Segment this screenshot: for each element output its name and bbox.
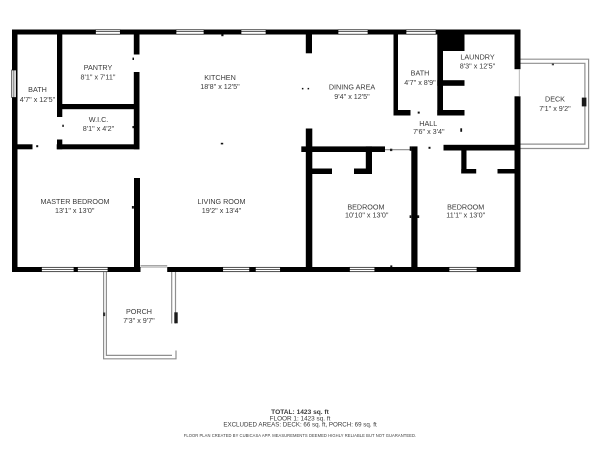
svg-text:FLOOR PLAN CREATED BY CUBICASA: FLOOR PLAN CREATED BY CUBICASA APP. MEAS… [184, 433, 416, 438]
svg-text:10'10" x 13'0": 10'10" x 13'0" [345, 210, 389, 219]
svg-text:BATH: BATH [411, 69, 430, 78]
svg-text:DECK: DECK [545, 95, 565, 104]
svg-text:LAUNDRY: LAUNDRY [460, 53, 494, 62]
svg-text:MASTER BEDROOM: MASTER BEDROOM [40, 197, 109, 206]
svg-text:LIVING ROOM: LIVING ROOM [198, 197, 246, 206]
svg-text:8'1" x 7'11": 8'1" x 7'11" [81, 72, 116, 81]
svg-text:DINING AREA: DINING AREA [329, 83, 376, 92]
svg-text:9'4" x 12'5": 9'4" x 12'5" [334, 92, 370, 101]
svg-text:4'7" x 12'5": 4'7" x 12'5" [20, 95, 56, 104]
svg-text:PANTRY: PANTRY [84, 63, 113, 72]
svg-text:PORCH: PORCH [126, 307, 152, 316]
svg-text:13'1" x 13'0": 13'1" x 13'0" [55, 206, 95, 215]
svg-text:EXCLUDED AREAS: DECK: 66 sq. f: EXCLUDED AREAS: DECK: 66 sq. ft, PORCH: … [223, 422, 377, 429]
svg-text:8'1" x 4'2": 8'1" x 4'2" [83, 124, 115, 133]
svg-text:19'2" x 13'4": 19'2" x 13'4" [202, 206, 242, 215]
svg-text:18'8" x 12'5": 18'8" x 12'5" [200, 82, 240, 91]
svg-text:11'1" x 13'0": 11'1" x 13'0" [446, 210, 485, 219]
svg-text:BATH: BATH [28, 85, 47, 94]
svg-text:4'7" x 8'9": 4'7" x 8'9" [404, 78, 436, 87]
svg-text:7'6" x 3'4": 7'6" x 3'4" [413, 127, 445, 136]
svg-text:7'3" x 9'7": 7'3" x 9'7" [123, 316, 155, 325]
svg-text:8'3" x 12'5": 8'3" x 12'5" [460, 62, 496, 71]
svg-text:7'1" x 9'2": 7'1" x 9'2" [539, 104, 571, 113]
svg-text:W.I.C.: W.I.C. [89, 115, 109, 124]
